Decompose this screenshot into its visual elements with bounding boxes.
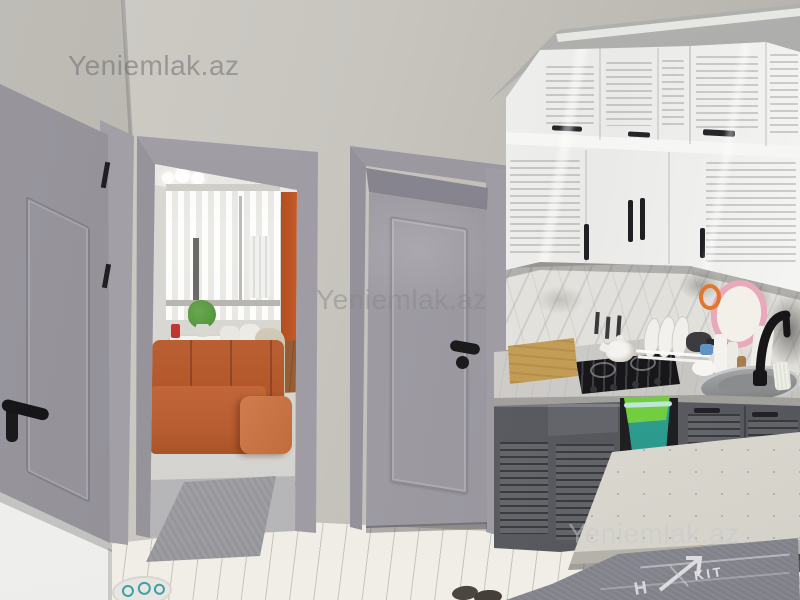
- cabinet-louver: [662, 60, 684, 128]
- mat-glyph: [137, 581, 151, 595]
- ceiling-lamp-globe: [175, 168, 190, 183]
- watermark-bottom-right: Yeniemlak.az: [568, 518, 740, 550]
- blue-cup: [700, 344, 713, 355]
- mat-glyph: [154, 583, 166, 595]
- teapot: [606, 340, 634, 362]
- cabinet-louver: [770, 54, 798, 138]
- cabinet-handle-vertical: [628, 200, 633, 242]
- plant-pot: [196, 324, 209, 337]
- radiator: [249, 236, 270, 298]
- cabinet-louver: [696, 56, 758, 130]
- watermark-top-left: Yeniemlak.az: [68, 50, 240, 82]
- cabinet-louver-dark: [500, 442, 548, 534]
- interior-photo: KIT H Yeniemlak.az Yeniemlak.az Yeniemla…: [0, 0, 800, 600]
- sofa-chaise: [240, 396, 292, 454]
- left-door-panel: [26, 196, 90, 503]
- stove-knob: [590, 386, 597, 393]
- scrub-brush: [773, 361, 792, 391]
- cabinet-handle: [694, 408, 720, 413]
- cabinet-seam: [657, 48, 659, 140]
- mat-glyph: [122, 585, 135, 598]
- cabinet-louver: [606, 62, 652, 126]
- rug-text-kit: KIT: [693, 564, 725, 584]
- cabinet-seam: [599, 48, 601, 140]
- curtain-rail: [166, 184, 280, 191]
- rug-text-h: H: [632, 577, 648, 600]
- mirror-hook: [699, 284, 721, 310]
- center-door-rosette: [456, 356, 469, 369]
- faucet-icon: [740, 298, 800, 388]
- cabinet-handle: [752, 412, 778, 417]
- cabinet-handle-vertical: [640, 198, 645, 240]
- window-mullion-2: [239, 196, 242, 306]
- teapot-lid: [616, 335, 624, 341]
- watermark-center: Yeniemlak.az: [316, 284, 488, 316]
- center-door-panel: [390, 216, 468, 494]
- cabinet-seam: [689, 44, 691, 144]
- cabinet-handle: [628, 131, 650, 137]
- cabinet-seam: [765, 42, 767, 146]
- accent-wall: [281, 192, 298, 346]
- cabinet-handle-vertical: [584, 224, 589, 260]
- cabinet-handle-vertical: [700, 228, 705, 258]
- window-sill: [166, 300, 280, 306]
- cabinet-seam: [668, 152, 670, 264]
- red-object: [171, 324, 180, 338]
